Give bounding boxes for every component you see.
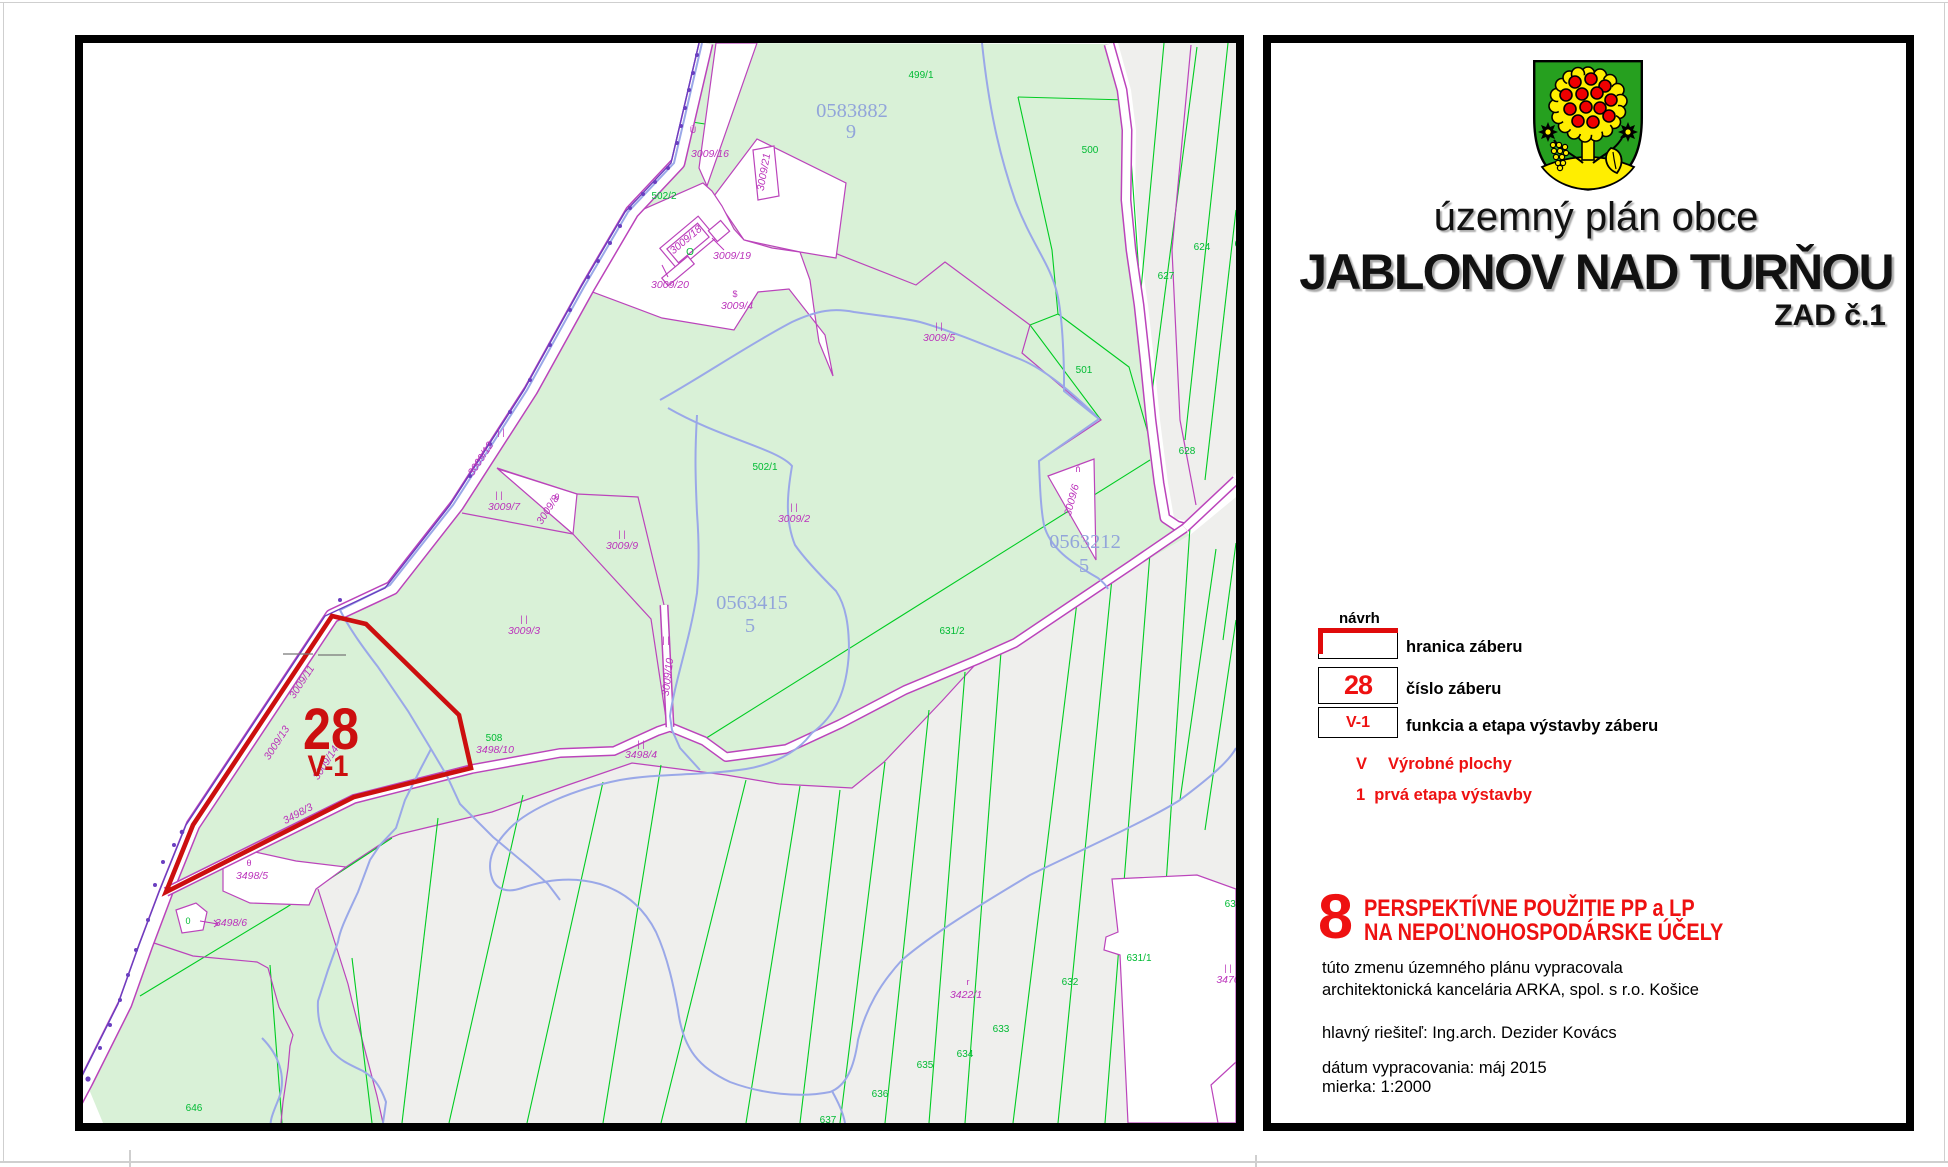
svg-text:θ: θ xyxy=(554,492,559,502)
svg-text:ň: ň xyxy=(1075,464,1080,474)
svg-text:630: 630 xyxy=(1225,899,1236,910)
svg-text:O: O xyxy=(686,247,694,258)
svg-text:499/1: 499/1 xyxy=(908,70,933,81)
svg-text:0563415: 0563415 xyxy=(716,592,788,614)
svg-text:3009/4: 3009/4 xyxy=(721,300,753,312)
svg-text:508: 508 xyxy=(486,733,503,744)
svg-text:θ: θ xyxy=(246,858,251,868)
svg-text:3009/19: 3009/19 xyxy=(713,250,751,262)
svg-text:5: 5 xyxy=(1079,555,1089,577)
svg-text:624: 624 xyxy=(1194,242,1211,253)
svg-text:3498/6: 3498/6 xyxy=(215,917,247,929)
svg-text:62: 62 xyxy=(1234,239,1236,250)
svg-text:3009/5: 3009/5 xyxy=(923,332,955,344)
svg-text:V-1: V-1 xyxy=(308,750,349,783)
svg-text:3498/10: 3498/10 xyxy=(476,744,514,756)
svg-text:Ü: Ü xyxy=(690,125,697,135)
svg-text:3009/7: 3009/7 xyxy=(488,501,521,513)
svg-text:| |: | | xyxy=(618,529,625,539)
svg-text:3009/20: 3009/20 xyxy=(651,279,689,291)
svg-text:633: 633 xyxy=(993,1024,1010,1035)
svg-text:| |: | | xyxy=(495,490,502,500)
svg-text:627: 627 xyxy=(1158,271,1175,282)
svg-text:| |: | | xyxy=(497,427,504,437)
svg-text:637: 637 xyxy=(820,1115,837,1123)
svg-text:| |: | | xyxy=(1224,963,1231,973)
svg-text:r: r xyxy=(967,977,970,987)
svg-text:3009/9: 3009/9 xyxy=(606,540,638,552)
svg-text:$: $ xyxy=(732,289,737,299)
svg-text:631/2: 631/2 xyxy=(939,626,964,637)
svg-text:3422/1: 3422/1 xyxy=(950,989,982,1001)
svg-text:0583882: 0583882 xyxy=(816,100,888,122)
svg-text:646: 646 xyxy=(186,1103,203,1114)
svg-text:| |: | | xyxy=(662,635,669,645)
svg-text:| |: | | xyxy=(520,614,527,624)
svg-text:5: 5 xyxy=(745,615,755,637)
svg-text:631/1: 631/1 xyxy=(1126,953,1151,964)
svg-text:0563212: 0563212 xyxy=(1049,531,1121,553)
svg-text:632: 632 xyxy=(1062,977,1079,988)
svg-text:3498/5: 3498/5 xyxy=(236,870,268,882)
svg-text:3470: 3470 xyxy=(1216,974,1236,986)
svg-text:634: 634 xyxy=(957,1049,974,1060)
svg-text:501: 501 xyxy=(1076,365,1093,376)
svg-text:| |: | | xyxy=(637,739,644,749)
svg-text:636: 636 xyxy=(872,1089,889,1100)
svg-text:628: 628 xyxy=(1179,446,1196,457)
svg-text:3009/2: 3009/2 xyxy=(778,513,810,525)
svg-text:3498/4: 3498/4 xyxy=(625,749,657,761)
svg-text:500: 500 xyxy=(1082,145,1099,156)
svg-text:| |: | | xyxy=(935,321,942,331)
svg-text:502/1: 502/1 xyxy=(752,462,777,473)
svg-text:0: 0 xyxy=(185,916,190,926)
svg-text:635: 635 xyxy=(917,1060,934,1071)
svg-text:9: 9 xyxy=(846,121,856,143)
svg-text:| |: | | xyxy=(790,502,797,512)
svg-text:3009/3: 3009/3 xyxy=(508,625,540,637)
svg-text:3009/16: 3009/16 xyxy=(691,148,729,160)
svg-text:502/2: 502/2 xyxy=(651,191,676,202)
